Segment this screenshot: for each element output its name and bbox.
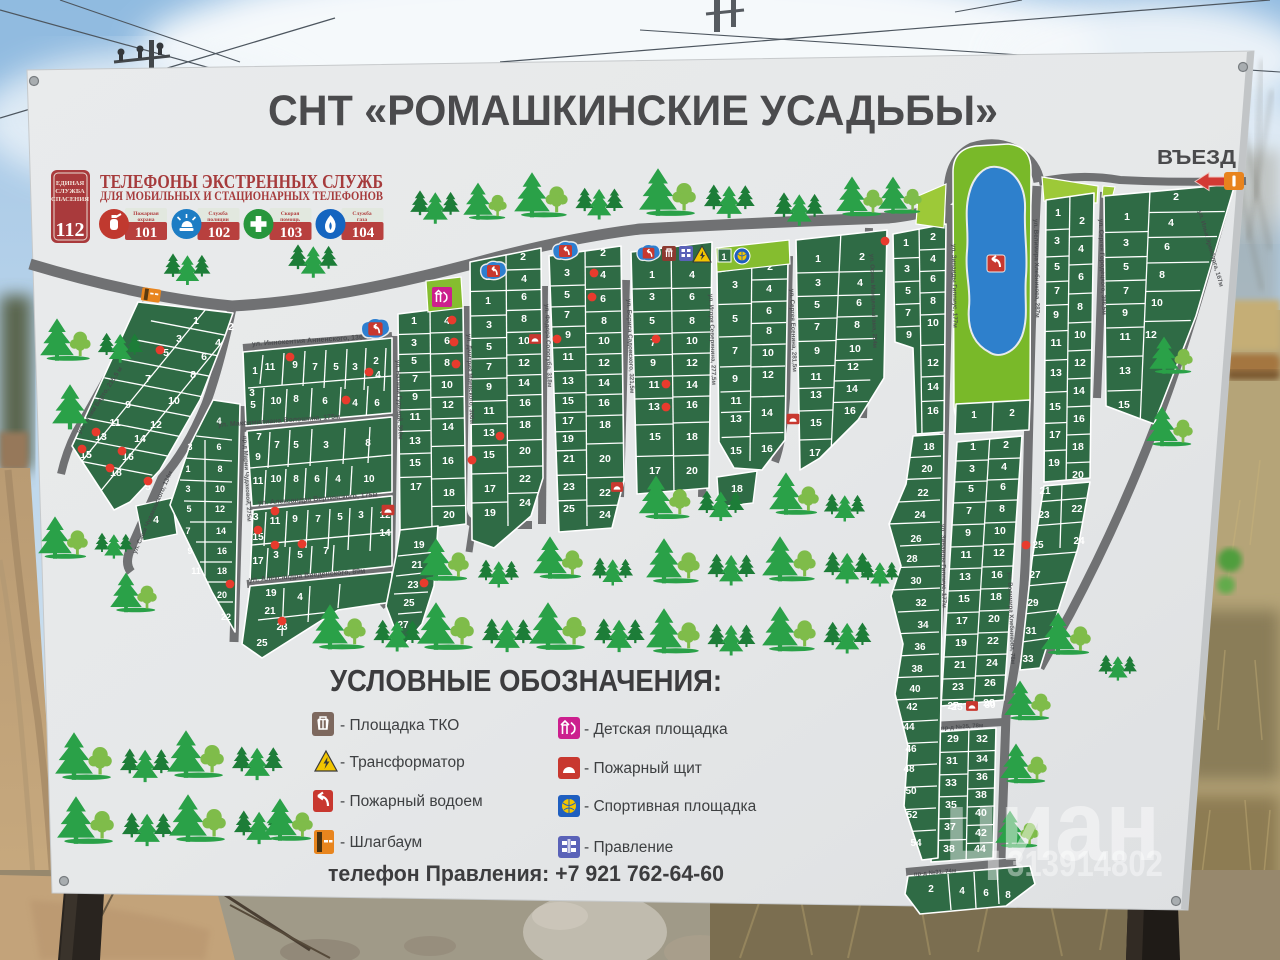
- svg-text:12: 12: [150, 419, 162, 431]
- svg-text:14: 14: [216, 526, 226, 536]
- svg-text:17: 17: [252, 556, 264, 567]
- svg-text:1: 1: [970, 441, 976, 453]
- svg-text:14: 14: [518, 377, 530, 389]
- svg-text:18: 18: [990, 591, 1002, 603]
- svg-text:2: 2: [928, 884, 934, 895]
- svg-text:12: 12: [442, 399, 454, 411]
- svg-text:7: 7: [732, 345, 738, 357]
- svg-text:2: 2: [600, 247, 606, 259]
- svg-text:8: 8: [365, 438, 371, 449]
- svg-text:10: 10: [849, 343, 861, 355]
- svg-text:1: 1: [903, 237, 909, 249]
- svg-text:10: 10: [363, 474, 375, 485]
- svg-text:11: 11: [1050, 337, 1061, 349]
- svg-text:6: 6: [444, 335, 450, 347]
- svg-text:2: 2: [930, 231, 936, 243]
- svg-text:8: 8: [293, 394, 299, 405]
- svg-text:11: 11: [265, 362, 276, 373]
- svg-text:18: 18: [731, 483, 743, 495]
- svg-text:СНТ «РОМАШКИНСКИЕ УСАДЬБЫ»: СНТ «РОМАШКИНСКИЕ УСАДЬБЫ»: [268, 88, 998, 135]
- svg-text:5: 5: [333, 362, 339, 373]
- svg-text:Служба: Служба: [352, 210, 371, 217]
- svg-text:22: 22: [599, 487, 611, 499]
- svg-text:13: 13: [959, 571, 971, 583]
- svg-text:20: 20: [1072, 469, 1084, 481]
- svg-text:8: 8: [1077, 301, 1083, 313]
- svg-text:12: 12: [927, 357, 939, 369]
- svg-text:9: 9: [292, 514, 298, 525]
- svg-text:3: 3: [323, 440, 329, 451]
- svg-text:ЕДИНАЯ: ЕДИНАЯ: [56, 180, 85, 187]
- svg-text:3: 3: [185, 484, 190, 494]
- svg-text:19: 19: [413, 540, 425, 551]
- svg-text:20: 20: [988, 613, 1000, 625]
- svg-text:9: 9: [814, 345, 820, 357]
- svg-text:Служба: Служба: [208, 210, 227, 217]
- svg-text:3: 3: [1123, 237, 1129, 249]
- svg-text:11: 11: [562, 351, 573, 363]
- svg-text:6: 6: [983, 888, 989, 899]
- svg-text:7: 7: [486, 361, 492, 373]
- svg-text:- Пожарный водоем: - Пожарный водоем: [340, 793, 483, 810]
- svg-text:11: 11: [191, 566, 201, 576]
- svg-text:103: 103: [280, 225, 303, 241]
- svg-text:24: 24: [1073, 536, 1085, 547]
- svg-text:20: 20: [217, 590, 227, 600]
- svg-text:3: 3: [732, 279, 738, 291]
- svg-text:ВЪЕЗД: ВЪЕЗД: [1157, 147, 1236, 169]
- svg-text:7: 7: [814, 321, 820, 333]
- svg-text:17: 17: [649, 465, 661, 477]
- svg-text:14: 14: [927, 381, 939, 393]
- svg-text:3: 3: [187, 442, 192, 452]
- svg-text:7: 7: [1123, 285, 1129, 297]
- svg-text:9: 9: [486, 381, 492, 393]
- svg-text:20: 20: [921, 464, 933, 475]
- svg-text:5: 5: [649, 315, 655, 327]
- svg-text:21: 21: [1039, 486, 1051, 497]
- svg-text:12: 12: [1074, 357, 1086, 369]
- svg-text:7: 7: [145, 373, 151, 385]
- svg-text:25: 25: [403, 598, 415, 609]
- svg-text:7: 7: [274, 440, 280, 451]
- svg-text:1: 1: [185, 464, 190, 474]
- svg-text:СПАСЕНИЯ: СПАСЕНИЯ: [51, 196, 89, 203]
- svg-text:14: 14: [134, 433, 146, 445]
- svg-text:1: 1: [193, 315, 199, 327]
- svg-text:9: 9: [187, 546, 192, 556]
- svg-text:16: 16: [519, 397, 531, 409]
- svg-text:6: 6: [856, 297, 862, 309]
- svg-text:СЛУЖБА: СЛУЖБА: [55, 188, 85, 195]
- svg-text:4: 4: [1078, 243, 1084, 255]
- svg-text:6: 6: [689, 291, 695, 303]
- svg-text:15: 15: [810, 417, 822, 429]
- svg-text:18: 18: [599, 419, 611, 431]
- svg-text:17: 17: [484, 483, 496, 495]
- svg-text:8: 8: [293, 474, 299, 485]
- svg-text:16: 16: [991, 569, 1003, 581]
- svg-text:13: 13: [483, 427, 495, 439]
- svg-text:3: 3: [969, 463, 975, 475]
- svg-text:5: 5: [968, 483, 974, 495]
- svg-text:9: 9: [1122, 307, 1128, 319]
- svg-text:40: 40: [909, 684, 921, 695]
- svg-text:11: 11: [648, 379, 659, 391]
- svg-text:8: 8: [444, 357, 450, 369]
- svg-text:6: 6: [1078, 271, 1084, 283]
- svg-text:5: 5: [732, 313, 738, 325]
- svg-text:1: 1: [1124, 211, 1130, 223]
- svg-text:54: 54: [910, 838, 922, 849]
- svg-text:2: 2: [859, 251, 865, 263]
- svg-text:24: 24: [986, 657, 998, 669]
- svg-text:9: 9: [565, 329, 571, 341]
- svg-text:5: 5: [293, 440, 299, 451]
- svg-text:6: 6: [930, 273, 936, 285]
- svg-text:19: 19: [562, 433, 574, 445]
- svg-text:6: 6: [521, 291, 527, 303]
- svg-text:16: 16: [442, 455, 454, 467]
- svg-text:5: 5: [337, 512, 343, 523]
- svg-text:24: 24: [599, 509, 611, 521]
- svg-text:ул. Зинаиды Гиппиус, 177м: ул. Зинаиды Гиппиус, 177м: [950, 244, 958, 328]
- svg-text:13: 13: [1119, 365, 1131, 377]
- svg-text:22: 22: [519, 473, 531, 485]
- svg-text:3: 3: [176, 333, 182, 345]
- svg-text:22: 22: [221, 612, 231, 622]
- svg-text:14: 14: [598, 377, 610, 389]
- svg-text:7: 7: [564, 309, 570, 321]
- svg-text:7: 7: [412, 373, 418, 385]
- svg-text:5: 5: [250, 400, 256, 411]
- svg-text:- Пожарный щит: - Пожарный щит: [584, 760, 702, 777]
- svg-text:2: 2: [1003, 439, 1009, 451]
- svg-text:7: 7: [323, 546, 329, 557]
- svg-text:31: 31: [946, 755, 958, 767]
- svg-text:12: 12: [518, 357, 530, 369]
- svg-text:50: 50: [905, 786, 917, 797]
- svg-text:14: 14: [846, 383, 858, 395]
- svg-text:18: 18: [519, 419, 531, 431]
- svg-text:3: 3: [815, 277, 821, 289]
- svg-text:8: 8: [1005, 890, 1011, 901]
- svg-text:28: 28: [906, 554, 918, 565]
- svg-text:16: 16: [844, 405, 856, 417]
- svg-text:1: 1: [1055, 207, 1061, 219]
- svg-text:11: 11: [270, 516, 281, 527]
- svg-text:16: 16: [761, 443, 773, 455]
- svg-text:9: 9: [125, 399, 131, 411]
- svg-text:11: 11: [960, 549, 971, 561]
- svg-text:- Правление: - Правление: [584, 839, 673, 856]
- svg-text:11: 11: [109, 417, 120, 429]
- svg-text:30: 30: [910, 576, 922, 587]
- svg-text:32: 32: [915, 598, 927, 609]
- svg-text:38: 38: [911, 664, 923, 675]
- svg-text:29: 29: [947, 733, 959, 745]
- svg-text:6: 6: [600, 293, 606, 305]
- svg-text:31: 31: [1025, 626, 1037, 637]
- svg-text:24: 24: [914, 510, 926, 521]
- svg-text:4: 4: [215, 337, 221, 349]
- svg-text:6: 6: [1000, 481, 1006, 493]
- svg-text:27: 27: [1029, 570, 1041, 581]
- svg-text:33: 33: [1022, 654, 1034, 665]
- svg-text:10: 10: [518, 335, 530, 347]
- svg-text:19: 19: [955, 637, 967, 649]
- svg-text:- Трансформатор: - Трансформатор: [340, 754, 465, 771]
- svg-text:23: 23: [563, 481, 575, 493]
- svg-text:6: 6: [314, 474, 320, 485]
- svg-text:- Шлагбаум: - Шлагбаум: [340, 834, 422, 851]
- svg-text:36: 36: [914, 642, 926, 653]
- svg-text:3: 3: [273, 550, 279, 561]
- svg-text:4: 4: [930, 253, 936, 265]
- svg-text:9: 9: [412, 391, 418, 403]
- svg-text:4: 4: [1168, 217, 1174, 229]
- svg-text:101: 101: [135, 225, 158, 241]
- svg-text:21: 21: [563, 453, 575, 465]
- svg-text:4: 4: [857, 277, 863, 289]
- svg-text:1: 1: [411, 315, 417, 327]
- svg-text:3: 3: [1054, 235, 1060, 247]
- svg-text:52: 52: [906, 810, 918, 821]
- svg-text:14: 14: [442, 421, 454, 433]
- svg-text:13: 13: [648, 401, 660, 413]
- svg-text:8: 8: [689, 315, 695, 327]
- svg-text:8: 8: [999, 503, 1005, 515]
- svg-text:13: 13: [562, 375, 574, 387]
- svg-text:11: 11: [810, 371, 821, 383]
- svg-text:10: 10: [215, 484, 225, 494]
- svg-text:4: 4: [521, 273, 527, 285]
- svg-text:23: 23: [952, 681, 964, 693]
- svg-text:12: 12: [686, 357, 698, 369]
- svg-text:8: 8: [930, 295, 936, 307]
- svg-text:10: 10: [994, 525, 1006, 537]
- svg-text:15: 15: [649, 431, 661, 443]
- svg-text:25: 25: [563, 503, 575, 515]
- svg-text:18: 18: [217, 566, 227, 576]
- svg-text:15: 15: [562, 395, 574, 407]
- svg-text:2: 2: [1009, 408, 1015, 419]
- svg-text:4: 4: [352, 398, 358, 409]
- svg-text:10: 10: [598, 335, 610, 347]
- svg-text:102: 102: [208, 225, 231, 241]
- svg-text:7: 7: [905, 307, 911, 319]
- svg-text:5: 5: [1123, 261, 1129, 273]
- svg-text:6: 6: [1164, 241, 1170, 253]
- svg-text:18: 18: [923, 442, 935, 453]
- svg-text:15: 15: [483, 449, 495, 461]
- svg-text:- Спортивная площадка: - Спортивная площадка: [584, 798, 757, 815]
- svg-text:2: 2: [373, 356, 379, 367]
- svg-text:12: 12: [847, 361, 859, 373]
- svg-text:18: 18: [686, 431, 698, 443]
- svg-text:15: 15: [730, 445, 742, 457]
- svg-text:8: 8: [1159, 269, 1165, 281]
- svg-text:10: 10: [927, 317, 939, 329]
- svg-text:ул. Зинаиды Гиппиус, 177м: ул. Зинаиды Гиппиус, 177м: [939, 524, 947, 608]
- svg-text:7: 7: [312, 362, 318, 373]
- svg-text:104: 104: [352, 225, 375, 241]
- svg-text:10: 10: [686, 335, 698, 347]
- svg-text:10: 10: [1074, 329, 1086, 341]
- svg-text:22: 22: [1071, 504, 1083, 515]
- svg-text:14: 14: [379, 528, 391, 539]
- svg-text:8: 8: [854, 319, 860, 331]
- svg-text:2: 2: [1173, 191, 1179, 203]
- svg-text:7: 7: [315, 514, 321, 525]
- svg-text:25: 25: [1032, 540, 1044, 551]
- svg-text:42: 42: [906, 702, 918, 713]
- svg-text:25: 25: [256, 638, 268, 649]
- svg-text:3: 3: [352, 362, 358, 373]
- svg-text:5: 5: [411, 355, 417, 367]
- svg-text:2: 2: [520, 251, 526, 263]
- svg-text:10: 10: [270, 474, 282, 485]
- svg-text:22: 22: [987, 635, 999, 647]
- svg-text:5: 5: [814, 299, 820, 311]
- svg-text:20: 20: [686, 465, 698, 477]
- svg-text:16: 16: [598, 397, 610, 409]
- svg-text:21: 21: [411, 560, 423, 571]
- svg-text:12: 12: [215, 504, 225, 514]
- svg-text:34: 34: [917, 620, 929, 631]
- svg-text:11: 11: [253, 476, 264, 487]
- svg-text:8: 8: [766, 325, 772, 337]
- svg-text:7: 7: [1054, 285, 1060, 297]
- svg-text:10: 10: [762, 347, 774, 359]
- svg-text:14: 14: [761, 407, 773, 419]
- svg-text:5: 5: [186, 504, 191, 514]
- svg-text:48: 48: [903, 764, 915, 775]
- svg-text:10: 10: [270, 396, 282, 407]
- svg-text:4: 4: [297, 592, 303, 603]
- svg-text:3: 3: [411, 337, 417, 349]
- svg-text:44: 44: [903, 722, 915, 733]
- svg-text:9: 9: [1053, 309, 1059, 321]
- svg-text:8: 8: [601, 315, 607, 327]
- svg-text:16: 16: [927, 405, 939, 417]
- svg-text:4: 4: [375, 370, 381, 381]
- svg-text:7: 7: [256, 432, 262, 443]
- svg-text:7: 7: [966, 505, 972, 517]
- svg-text:16: 16: [1073, 413, 1085, 425]
- svg-text:17: 17: [956, 615, 968, 627]
- svg-text:4: 4: [689, 269, 695, 281]
- svg-text:5: 5: [297, 550, 303, 561]
- svg-text:17: 17: [809, 447, 821, 459]
- svg-text:19: 19: [484, 507, 496, 519]
- svg-text:34: 34: [976, 753, 988, 765]
- svg-text:9: 9: [965, 527, 971, 539]
- svg-text:11: 11: [409, 411, 420, 423]
- svg-text:9: 9: [650, 357, 656, 369]
- svg-text:4: 4: [959, 886, 965, 897]
- svg-text:9: 9: [732, 373, 738, 385]
- svg-text:23: 23: [407, 580, 419, 591]
- svg-text:5: 5: [564, 289, 570, 301]
- svg-text:1: 1: [485, 295, 491, 307]
- svg-text:6: 6: [201, 351, 207, 363]
- svg-text:12: 12: [1145, 329, 1157, 341]
- svg-text:- Детская площадка: - Детская площадка: [584, 721, 728, 738]
- svg-text:4: 4: [766, 283, 772, 295]
- svg-text:4: 4: [1001, 461, 1007, 473]
- svg-text:15: 15: [1118, 399, 1130, 411]
- svg-text:5: 5: [905, 285, 911, 297]
- svg-text:6: 6: [374, 398, 380, 409]
- svg-text:20: 20: [519, 445, 531, 457]
- svg-text:телефон Правления: +7 921 762-: телефон Правления: +7 921 762-64-60: [328, 861, 724, 886]
- svg-text:8: 8: [190, 369, 196, 381]
- svg-text:1: 1: [971, 410, 977, 421]
- svg-text:3: 3: [564, 267, 570, 279]
- svg-text:7: 7: [185, 526, 190, 536]
- svg-text:20: 20: [443, 509, 455, 521]
- svg-text:21: 21: [954, 659, 966, 671]
- svg-text:13: 13: [1050, 367, 1062, 379]
- svg-text:16: 16: [217, 546, 227, 556]
- svg-text:3: 3: [249, 388, 255, 399]
- svg-text:2: 2: [228, 321, 234, 333]
- svg-text:17: 17: [1049, 429, 1061, 441]
- svg-text:22: 22: [917, 488, 929, 499]
- svg-text:11: 11: [1119, 331, 1130, 343]
- svg-text:12: 12: [762, 369, 774, 381]
- svg-text:3: 3: [358, 510, 364, 521]
- svg-text:24: 24: [519, 497, 531, 509]
- svg-text:6: 6: [766, 305, 772, 317]
- svg-text:6: 6: [216, 442, 221, 452]
- svg-text:13: 13: [409, 435, 421, 447]
- svg-text:15: 15: [1049, 401, 1061, 413]
- svg-text:9: 9: [255, 452, 261, 463]
- svg-text:19: 19: [1048, 457, 1060, 469]
- svg-text:12: 12: [598, 357, 610, 369]
- svg-text:29: 29: [1027, 598, 1039, 609]
- svg-text:19: 19: [265, 588, 277, 599]
- svg-text:1: 1: [252, 366, 258, 377]
- svg-text:17: 17: [410, 481, 422, 493]
- svg-text:21: 21: [264, 606, 276, 617]
- svg-text:13: 13: [810, 389, 822, 401]
- svg-text:1: 1: [649, 269, 655, 281]
- svg-text:1: 1: [721, 252, 726, 262]
- svg-text:11: 11: [483, 405, 494, 417]
- svg-text:17: 17: [562, 415, 574, 427]
- svg-text:8: 8: [521, 313, 527, 325]
- svg-text:112: 112: [56, 219, 85, 241]
- svg-text:10: 10: [168, 395, 180, 407]
- svg-text:УСЛОВНЫЕ ОБОЗНАЧЕНИЯ:: УСЛОВНЫЕ ОБОЗНАЧЕНИЯ:: [330, 663, 722, 698]
- svg-text:14: 14: [1073, 385, 1085, 397]
- svg-text:20: 20: [599, 453, 611, 465]
- svg-text:23: 23: [1038, 510, 1050, 521]
- svg-text:18: 18: [443, 487, 455, 499]
- svg-text:8: 8: [217, 464, 222, 474]
- svg-text:11: 11: [730, 395, 741, 407]
- svg-text:15: 15: [958, 593, 970, 605]
- svg-text:13: 13: [730, 413, 742, 425]
- svg-text:3: 3: [649, 291, 655, 303]
- svg-text:ДЛЯ МОБИЛЬНЫХ И СТАЦИОНАРНЫХ Т: ДЛЯ МОБИЛЬНЫХ И СТАЦИОНАРНЫХ ТЕЛЕФОНОВ: [100, 188, 383, 203]
- svg-text:10: 10: [1151, 297, 1163, 309]
- svg-text:- Площадка ТКО: - Площадка ТКО: [340, 717, 459, 734]
- svg-text:15: 15: [409, 457, 421, 469]
